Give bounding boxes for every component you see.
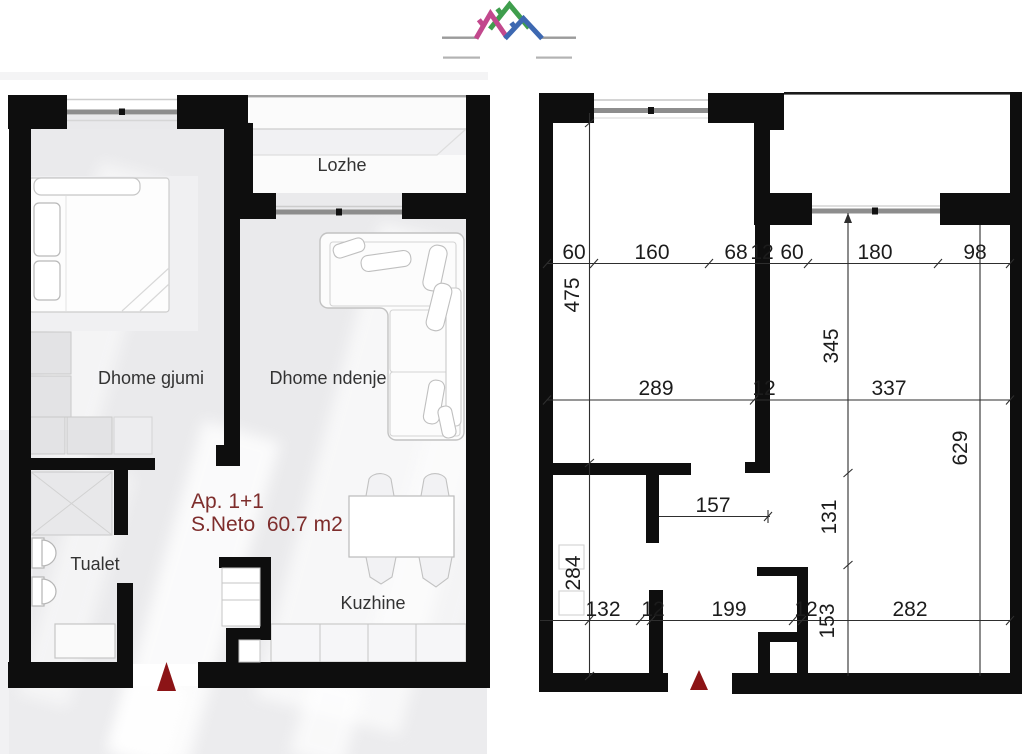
svg-text:12: 12 [794, 598, 817, 621]
svg-text:284: 284 [562, 555, 585, 590]
svg-text:337: 337 [871, 377, 906, 400]
svg-text:S.Neto 60.7 m2: S.Neto 60.7 m2 [191, 513, 343, 536]
svg-text:60: 60 [562, 241, 585, 264]
svg-text:199: 199 [711, 598, 746, 621]
svg-text:Dhome ndenje: Dhome ndenje [269, 368, 386, 388]
svg-text:98: 98 [963, 241, 986, 264]
svg-text:153: 153 [816, 603, 839, 638]
svg-text:Lozhe: Lozhe [317, 155, 366, 175]
svg-text:475: 475 [561, 277, 584, 312]
svg-text:289: 289 [638, 377, 673, 400]
svg-text:282: 282 [892, 598, 927, 621]
svg-text:68: 68 [724, 241, 747, 264]
svg-text:Ap. 1+1: Ap. 1+1 [191, 490, 264, 513]
svg-text:Tualet: Tualet [70, 554, 119, 574]
svg-text:160: 160 [634, 241, 669, 264]
svg-text:Kuzhine: Kuzhine [340, 593, 405, 613]
svg-text:629: 629 [949, 430, 972, 465]
svg-text:132: 132 [585, 598, 620, 621]
svg-text:12: 12 [641, 598, 664, 621]
svg-text:345: 345 [820, 328, 843, 363]
svg-text:180: 180 [857, 241, 892, 264]
svg-text:12: 12 [750, 241, 773, 264]
svg-text:Dhome gjumi: Dhome gjumi [98, 368, 204, 388]
svg-text:157: 157 [695, 494, 730, 517]
svg-text:12: 12 [752, 377, 775, 400]
svg-text:60: 60 [780, 241, 803, 264]
svg-text:131: 131 [818, 499, 841, 534]
